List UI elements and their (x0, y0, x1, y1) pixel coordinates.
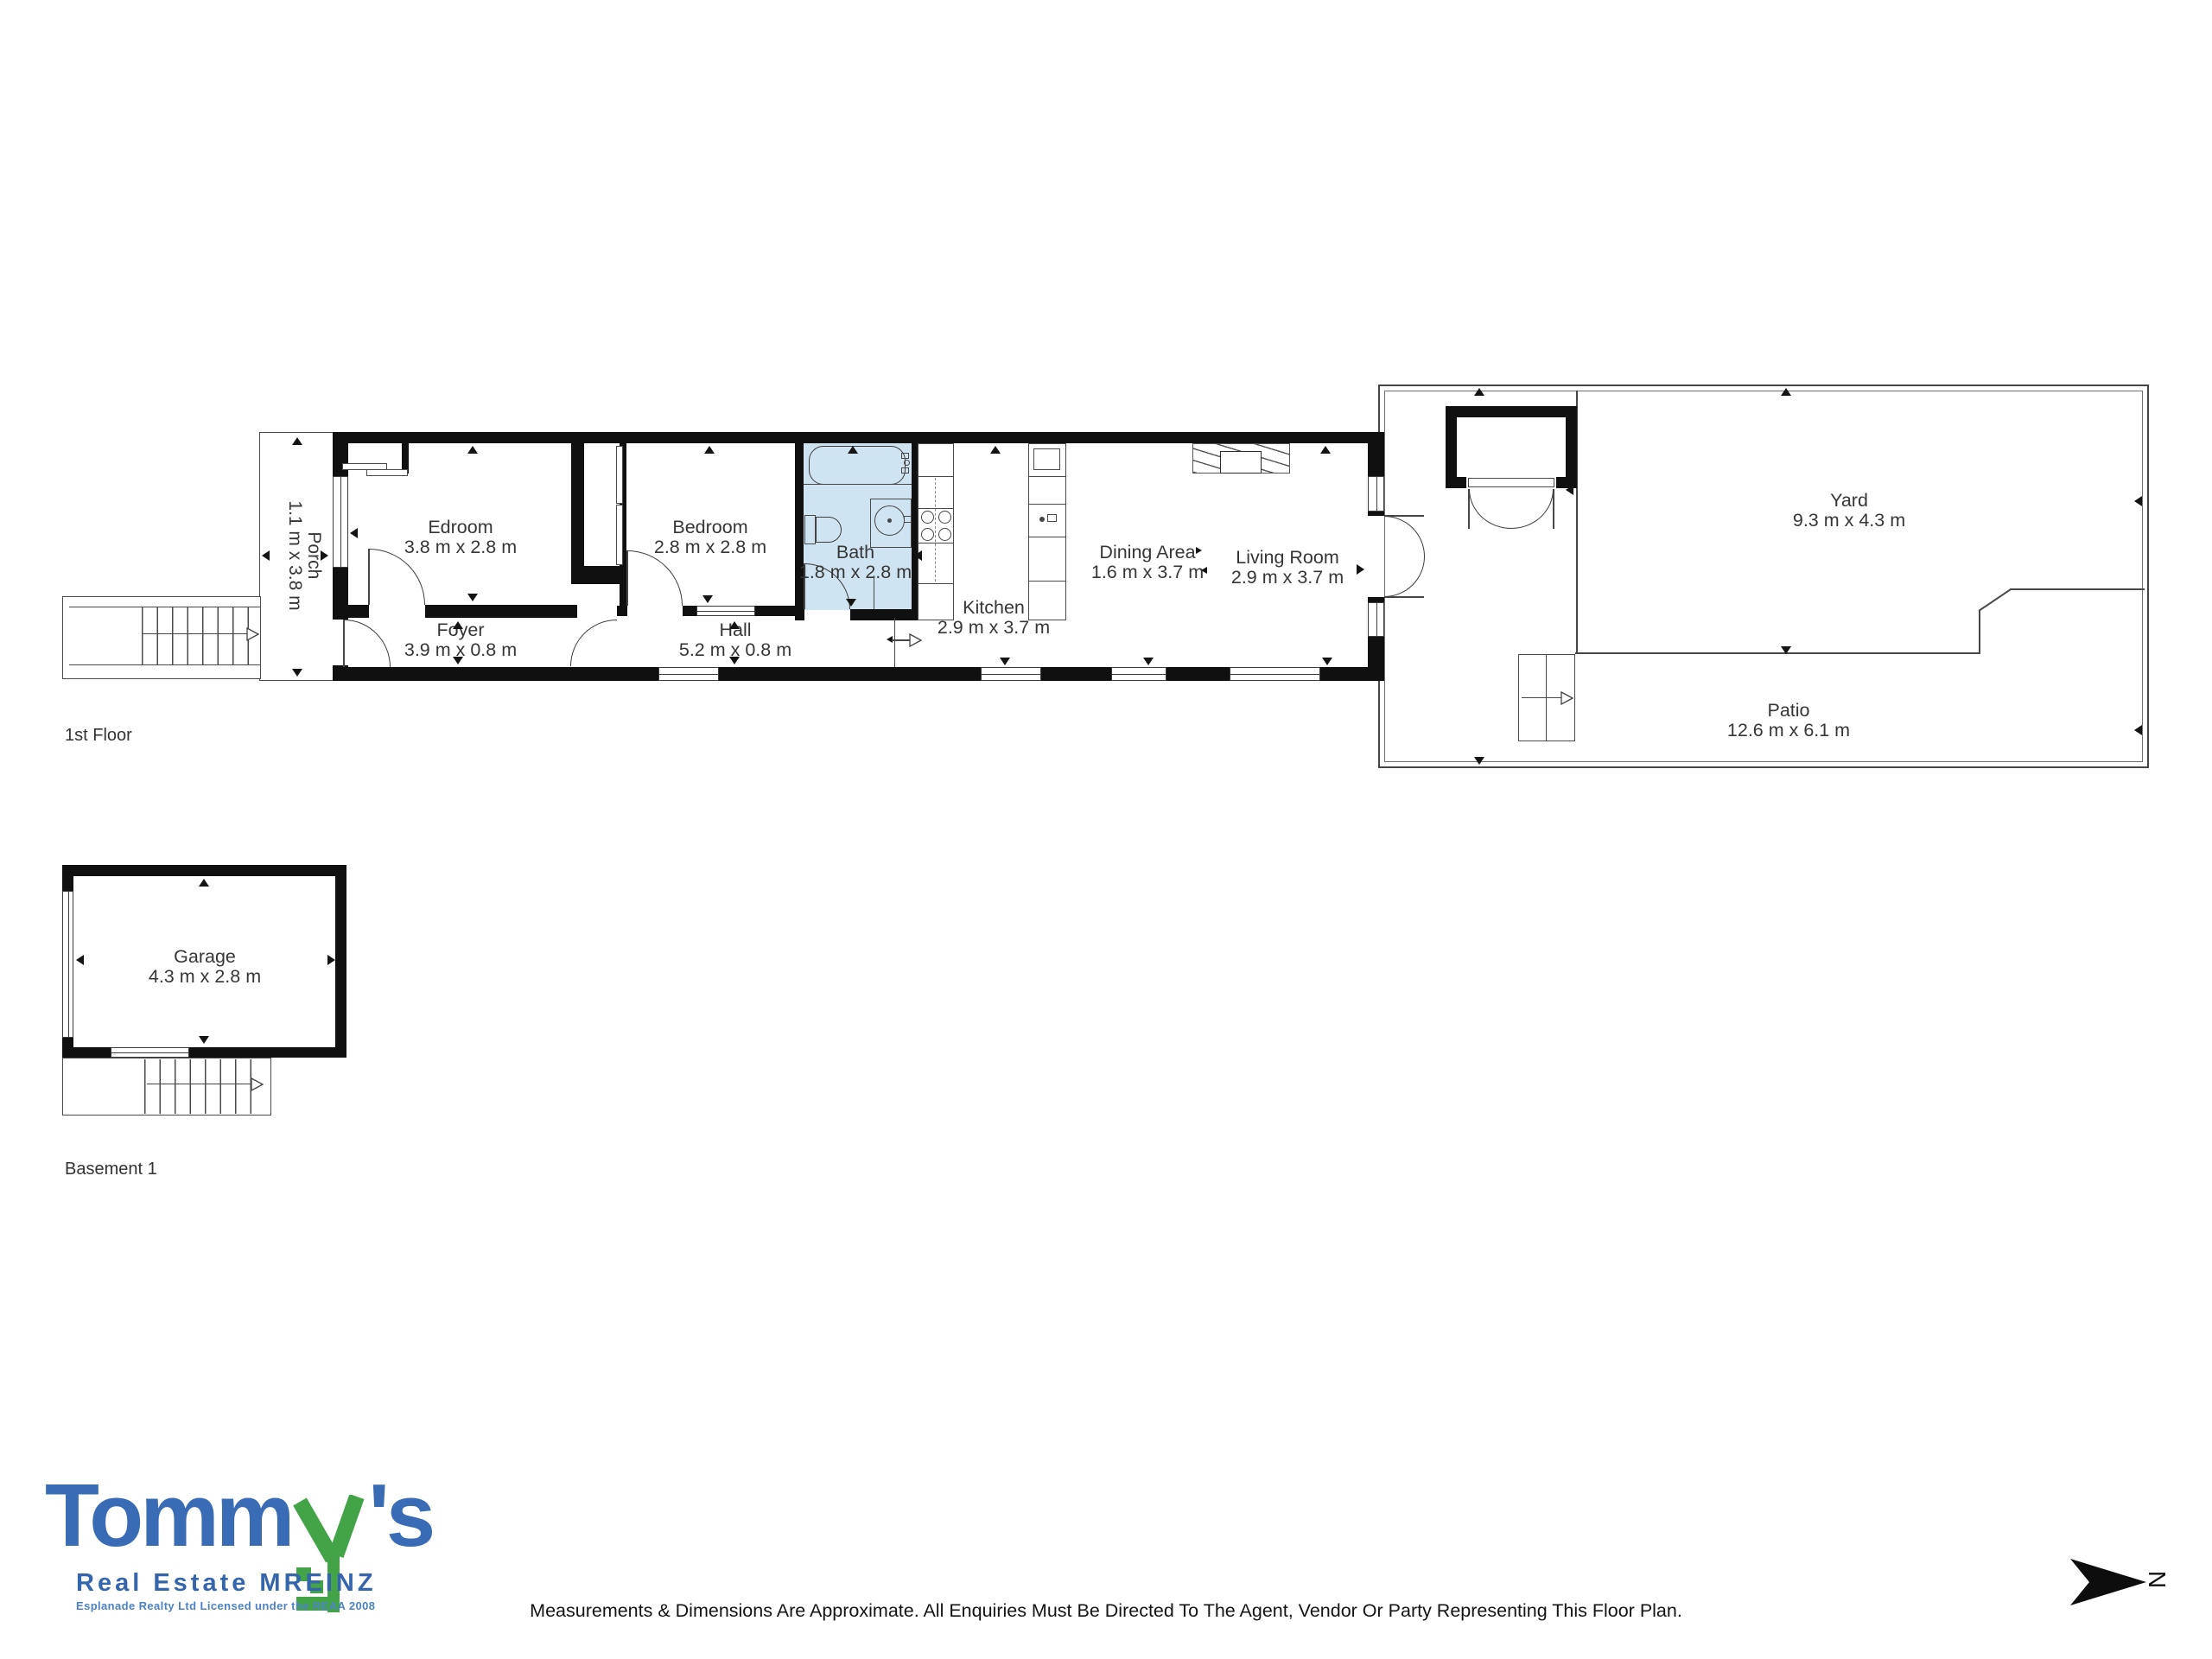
room-name: Bedroom (654, 518, 766, 537)
island-line (1028, 504, 1066, 505)
window-living (1230, 667, 1320, 681)
tick (2134, 496, 2142, 506)
tick (199, 879, 209, 887)
tub-faucet (901, 453, 909, 459)
room-name: Living Room (1231, 548, 1344, 568)
tick (1474, 388, 1484, 396)
stove-burner (938, 511, 951, 524)
wall-bottom (333, 667, 658, 681)
vestibule-sliding-panel (616, 505, 623, 565)
wall-bottom (1041, 667, 1111, 681)
window-hall (658, 667, 719, 681)
tick (453, 657, 463, 664)
counter-line (918, 543, 954, 543)
wall-left (333, 665, 348, 681)
wall-bedroom-bottom (617, 606, 627, 616)
garage-wall-top (62, 865, 346, 876)
room-label-kitchen: Kitchen 2.9 m x 3.7 m (938, 598, 1050, 638)
patio-divider-step (1979, 610, 1980, 654)
room-dims: 1.6 m x 3.7 m (1091, 563, 1204, 582)
room-name: Kitchen (938, 598, 1050, 618)
wall-bath-bottom (850, 609, 921, 620)
tick (1201, 567, 1207, 574)
tick (1781, 646, 1791, 654)
toilet-bowl (816, 517, 842, 543)
north-arrow-icon (2069, 1557, 2148, 1607)
wall-bottom (719, 667, 981, 681)
floor-label-basement: Basement 1 (65, 1160, 157, 1179)
window-bedroom-hall (696, 606, 755, 616)
garage-wall-bottom (189, 1047, 346, 1058)
room-label-garage: Garage 4.3 m x 2.8 m (149, 947, 261, 987)
shed-interior (1457, 417, 1566, 477)
tick (1196, 547, 1202, 554)
wall-bath-left (795, 443, 804, 609)
tick (467, 594, 478, 601)
tick (704, 446, 715, 454)
tick (1322, 658, 1332, 665)
wall-right (1368, 637, 1384, 681)
tick (1566, 485, 1573, 495)
front-stairs-arrow-icon (246, 627, 259, 641)
tick (199, 1036, 209, 1044)
hall-arrow-icon (909, 633, 922, 647)
room-dims: 4.3 m x 2.8 m (149, 967, 261, 987)
tick (729, 657, 740, 664)
vanity-faucet (904, 516, 912, 523)
fireplace-firebox (1220, 451, 1262, 474)
room-dims: 1.1 m x 3.8 m (285, 500, 304, 610)
tick (1357, 564, 1364, 575)
room-name: Dining Area (1091, 543, 1204, 563)
logo-subtitle: Real Estate MREINZ (76, 1569, 377, 1598)
tick (467, 446, 478, 454)
tub-faucet (901, 467, 909, 474)
room-label-bedroom: Bedroom 2.8 m x 2.8 m (654, 518, 766, 557)
garage-door (62, 891, 73, 1038)
tick (76, 955, 84, 965)
garage-stairs-arrow-icon (251, 1077, 264, 1091)
room-name: Yard (1793, 491, 1905, 511)
stove-burner (921, 511, 934, 524)
tick (292, 669, 302, 677)
tick (702, 595, 713, 603)
counter-line (918, 508, 954, 509)
patio-divider-right (2010, 588, 2145, 590)
window-dining (1111, 667, 1166, 681)
patio-stairs-arrow-line (1522, 697, 1565, 698)
counter-dashed-line (935, 478, 936, 582)
dishwasher-handle (1047, 514, 1057, 522)
wall-foyer-top (425, 605, 577, 618)
disclaimer-text: Measurements & Dimensions Are Approximat… (530, 1600, 1682, 1622)
room-dims: 3.8 m x 2.8 m (404, 537, 517, 557)
island-line (1028, 537, 1066, 537)
garage-wall-bottom (62, 1047, 111, 1058)
tick (914, 550, 922, 561)
tick (1474, 757, 1484, 765)
wall-left (333, 568, 348, 620)
stove-burner (921, 528, 934, 541)
window-living-east-2 (1368, 602, 1384, 637)
tick (1320, 446, 1331, 454)
bath-divider-line (804, 484, 912, 485)
tub-knob (904, 460, 910, 466)
logo-text-suffix: 's (368, 1471, 432, 1560)
vestibule-sliding-panel (616, 446, 623, 504)
wall-vestibule-left (571, 443, 584, 566)
room-dims: 2.9 m x 3.7 m (1231, 568, 1344, 588)
island-sink (1033, 448, 1060, 470)
tick (321, 550, 328, 561)
room-name: Edroom (404, 518, 517, 537)
window-living-east-1 (1368, 476, 1384, 512)
room-label-porch: Porch 1.1 m x 3.8 m (285, 500, 323, 610)
room-label-dining: Dining Area 1.6 m x 3.7 m (1091, 543, 1204, 582)
logo-key-y-icon (293, 1495, 365, 1616)
window-kitchen (981, 667, 1041, 681)
island-line (1028, 581, 1066, 582)
counter-line (918, 583, 954, 584)
tick (846, 599, 856, 607)
island-line (1028, 476, 1066, 477)
shed-threshold (1468, 478, 1554, 487)
tick (1143, 658, 1154, 665)
tick (262, 550, 270, 561)
tick (1000, 658, 1010, 665)
stove-burner (938, 528, 951, 541)
room-dims: 1.8 m x 2.8 m (799, 563, 912, 582)
closet-sliding-panel (366, 469, 408, 476)
toilet-tank (804, 515, 816, 544)
garage-wall-right (335, 865, 346, 1058)
room-dims: 12.6 m x 6.1 m (1727, 721, 1850, 741)
wall-top (333, 432, 1384, 443)
room-dims: 9.3 m x 4.3 m (1793, 511, 1905, 531)
front-stairs-arrow-line (142, 633, 249, 634)
room-name: Garage (149, 947, 261, 967)
wall-bath-bottom (795, 609, 804, 620)
room-label-yard: Yard 9.3 m x 4.3 m (1793, 491, 1905, 531)
floor-label-first: 1st Floor (65, 726, 132, 746)
tick (453, 621, 463, 629)
logo-tagline: Esplanade Realty Ltd Licensed under the … (76, 1599, 375, 1612)
counter-line (918, 476, 954, 477)
garage-stairs-treads (144, 1059, 265, 1114)
dishwasher-knob (1039, 517, 1045, 522)
garage-wall-left (62, 865, 73, 893)
north-label: N (2143, 1571, 2171, 1588)
patio-divider (1575, 652, 1980, 654)
room-label-living: Living Room 2.9 m x 3.7 m (1231, 548, 1344, 588)
room-label-edroom: Edroom 3.8 m x 2.8 m (404, 518, 517, 557)
room-name: Bath (799, 543, 912, 563)
logo-text-main: Tomm (45, 1471, 291, 1560)
wall-foyer-top (348, 605, 369, 618)
tick (2134, 725, 2142, 735)
room-dims: 2.9 m x 3.7 m (938, 618, 1050, 638)
garage-stairs-arrow-line (147, 1084, 252, 1084)
floor-plan-page: Yard 9.3 m x 4.3 m Patio 12.6 m x 6.1 m … (0, 0, 2212, 1659)
tick (848, 446, 858, 454)
window-porch (333, 476, 348, 568)
tick (729, 621, 740, 629)
tick (292, 437, 302, 445)
room-name: Patio (1727, 701, 1850, 721)
tick (990, 446, 1001, 454)
wall-vestibule-stub (571, 566, 625, 584)
garage-window (111, 1047, 189, 1058)
tick (327, 955, 335, 965)
wall-right (1368, 512, 1384, 516)
tick (350, 528, 358, 538)
wall-bottom (1166, 667, 1230, 681)
patio-stairs-arrow-icon (1560, 691, 1573, 705)
wall-bedroom-bottom (683, 606, 696, 616)
tick (1781, 388, 1791, 396)
kitchen-threshold (894, 618, 895, 667)
front-stairs-treads (142, 607, 261, 665)
basin-drain (887, 518, 892, 523)
wall-right (1368, 432, 1384, 476)
room-dims: 2.8 m x 2.8 m (654, 537, 766, 557)
room-label-patio: Patio 12.6 m x 6.1 m (1727, 701, 1850, 741)
room-label-bath: Bath 1.8 m x 2.8 m (799, 543, 912, 582)
